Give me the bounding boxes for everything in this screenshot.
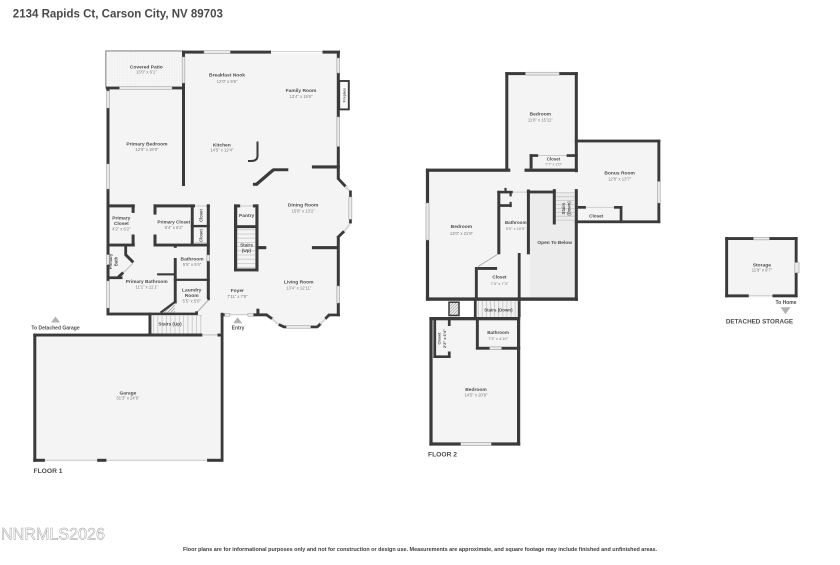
svg-text:Pantry: Pantry [239, 213, 255, 219]
svg-text:Closet: Closet [547, 157, 561, 162]
svg-text:13’0” x 6’1”: 13’0” x 6’1” [136, 69, 157, 74]
svg-text:2’2” x 6’4”: 2’2” x 6’4” [442, 329, 447, 348]
svg-text:Primary: Primary [108, 253, 113, 269]
svg-text:7’7” x 2’0”: 7’7” x 2’0” [545, 162, 562, 166]
svg-text:Stairs (Up): Stairs (Up) [158, 322, 182, 327]
svg-text:14’5” x 12’4”: 14’5” x 12’4” [210, 148, 234, 153]
svg-text:Floor plans are for informatio: Floor plans are for informational purpos… [183, 547, 658, 553]
svg-text:Bedroom: Bedroom [451, 224, 473, 230]
svg-text:To Detached Garage: To Detached Garage [31, 326, 79, 332]
svg-text:5’0” x 10’5”: 5’0” x 10’5” [506, 226, 526, 231]
svg-text:FLOOR 1: FLOOR 1 [34, 468, 63, 475]
svg-text:7’11” x 7’8”: 7’11” x 7’8” [227, 294, 248, 299]
svg-text:13’4” x 19’6”: 13’4” x 19’6” [289, 94, 313, 99]
svg-text:31’3” x 24’6”: 31’3” x 24’6” [116, 396, 140, 401]
svg-text:Stairs: Stairs [240, 242, 253, 247]
svg-text:11’8” x 15’11”: 11’8” x 15’11” [528, 117, 553, 122]
svg-text:Closet: Closet [589, 214, 604, 219]
svg-text:DETACHED STORAGE: DETACHED STORAGE [726, 319, 793, 326]
svg-text:Stairs (Down): Stairs (Down) [484, 308, 513, 313]
svg-text:15’8” x 13’2”: 15’8” x 13’2” [292, 209, 316, 214]
svg-text:Bath: Bath [114, 256, 119, 266]
svg-text:Bathroom: Bathroom [505, 220, 527, 225]
svg-text:Breakfast Nook: Breakfast Nook [209, 73, 245, 79]
svg-text:Laundry: Laundry [182, 287, 202, 293]
svg-text:FLOOR 2: FLOOR 2 [428, 451, 457, 458]
svg-text:NNRMLS2026: NNRMLS2026 [1, 525, 105, 544]
svg-text:Closet: Closet [199, 229, 204, 242]
svg-text:(Down): (Down) [567, 201, 572, 216]
svg-text:14’5” x 20’8”: 14’5” x 20’8” [464, 393, 488, 398]
svg-text:12’0” x 9’6”: 12’0” x 9’6” [217, 79, 238, 84]
svg-text:Stairs: Stairs [561, 202, 566, 214]
svg-text:To Home: To Home [775, 300, 796, 306]
svg-text:11’8” x 9’7”: 11’8” x 9’7” [752, 268, 773, 273]
svg-text:Primary: Primary [112, 215, 130, 221]
svg-text:11’1” x 11’1”: 11’1” x 11’1” [135, 285, 158, 290]
svg-text:Closet: Closet [436, 332, 441, 345]
svg-text:Closet: Closet [492, 275, 507, 280]
svg-text:13’4” x 12’11”: 13’4” x 12’11” [286, 286, 312, 291]
svg-text:Fireplace: Fireplace [342, 88, 346, 103]
svg-text:4’2” x 6’2”: 4’2” x 6’2” [112, 227, 131, 232]
svg-text:Primary Closet: Primary Closet [157, 219, 190, 224]
svg-text:Entry: Entry [232, 325, 245, 331]
svg-text:Bathroom: Bathroom [487, 330, 509, 335]
svg-text:12’9” x 18’0”: 12’9” x 18’0” [135, 147, 159, 152]
svg-text:5’5” x 9’4”: 5’5” x 9’4” [183, 262, 202, 267]
svg-text:Open To Below: Open To Below [537, 240, 572, 246]
svg-text:12’8” x 13’7”: 12’8” x 13’7” [608, 176, 632, 181]
svg-text:Closet: Closet [199, 209, 204, 222]
svg-text:2134 Rapids Ct, Carson City, N: 2134 Rapids Ct, Carson City, NV 89703 [13, 9, 223, 21]
svg-text:5’5” x 5’6”: 5’5” x 5’6” [183, 298, 202, 303]
svg-text:6’4” x 6’2”: 6’4” x 6’2” [165, 225, 184, 230]
svg-text:(Up): (Up) [242, 248, 252, 253]
svg-text:7’3” x 4’10”: 7’3” x 4’10” [488, 336, 508, 341]
svg-text:13’0” x 21’9”: 13’0” x 21’9” [450, 231, 474, 236]
svg-text:7’3” x 7’3”: 7’3” x 7’3” [491, 281, 509, 286]
